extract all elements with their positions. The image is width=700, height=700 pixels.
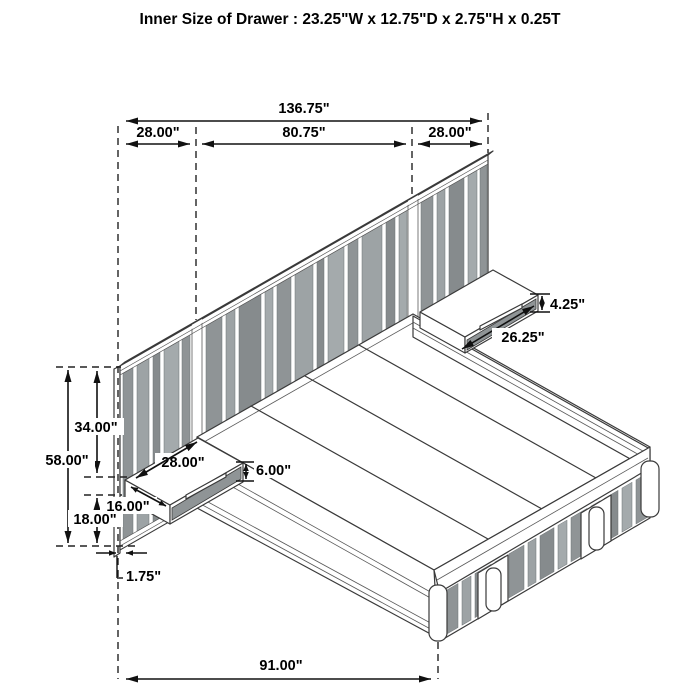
page-title: Inner Size of Drawer : 23.25"W x 12.75"D…	[140, 11, 561, 28]
dimension-diagram-page: Inner Size of Drawer : 23.25"W x 12.75"D…	[0, 0, 700, 700]
dim-right-shelf-width-label: 26.25"	[501, 330, 544, 346]
dim-shelf-front-depth-label: 16.00"	[106, 499, 149, 515]
dim-left-panel-label: 28.00"	[136, 125, 179, 141]
foot-right-post	[641, 461, 659, 517]
dim-right-panel-label: 28.00"	[428, 125, 471, 141]
dim-shelf-top-depth-label: 28.00"	[161, 455, 204, 471]
dim-total-height-label: 58.00"	[45, 453, 88, 469]
dim-bed-length-label: 91.00"	[259, 658, 302, 674]
footboard-handle-right	[589, 507, 604, 550]
bed-dimension-diagram: Inner Size of Drawer : 23.25"W x 12.75"D…	[0, 0, 700, 700]
dim-overall-width-label: 136.75"	[278, 101, 329, 117]
footboard-handle-left	[486, 568, 501, 611]
dim-center-panel-label: 80.75"	[282, 125, 325, 141]
dim-top-to-shelf-label: 34.00"	[74, 420, 117, 436]
foot-left-post	[429, 585, 447, 641]
dim-right-shelf-height-label: 4.25"	[550, 297, 585, 313]
dim-left-shelf-height-label: 6.00"	[256, 463, 291, 479]
dim-panel-thickness-label: 1.75"	[126, 569, 161, 585]
headboard-left-edge	[114, 366, 120, 557]
